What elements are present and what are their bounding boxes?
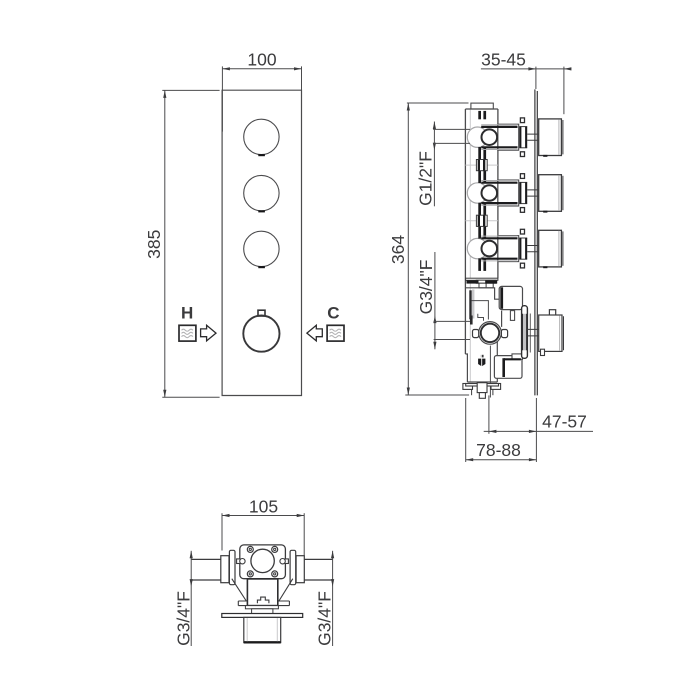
svg-text:G3/4"F: G3/4"F <box>173 591 193 646</box>
svg-text:35-45: 35-45 <box>481 49 526 69</box>
svg-text:G3/4"F: G3/4"F <box>416 260 436 315</box>
svg-text:G3/4"F: G3/4"F <box>314 591 334 646</box>
svg-text:78-88: 78-88 <box>476 440 521 460</box>
svg-text:H: H <box>181 303 193 322</box>
svg-text:C: C <box>327 303 339 322</box>
svg-text:G1/2"F: G1/2"F <box>416 151 436 206</box>
svg-text:364: 364 <box>388 235 408 264</box>
svg-text:47-57: 47-57 <box>542 412 587 432</box>
svg-text:105: 105 <box>249 496 278 516</box>
svg-text:385: 385 <box>144 230 164 259</box>
svg-text:100: 100 <box>247 50 276 70</box>
